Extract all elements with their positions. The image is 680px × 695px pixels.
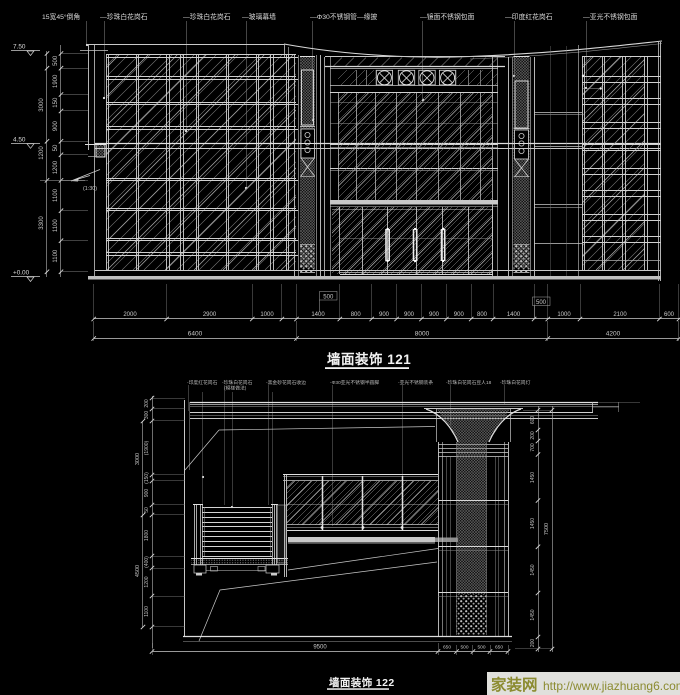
- svg-text:1450: 1450: [530, 518, 536, 529]
- svg-text:4200: 4200: [606, 331, 621, 338]
- svg-text:(1900): (1900): [144, 440, 150, 455]
- svg-text:1900: 1900: [53, 74, 59, 88]
- svg-text:1100: 1100: [53, 188, 59, 202]
- svg-text:900: 900: [429, 312, 440, 318]
- svg-text:6400: 6400: [188, 331, 203, 338]
- svg-text:3000: 3000: [39, 98, 45, 112]
- svg-text:8000: 8000: [415, 331, 430, 338]
- svg-text:9500: 9500: [313, 645, 327, 651]
- svg-text:15宽45°倒角: 15宽45°倒角: [42, 12, 80, 21]
- svg-text:2100: 2100: [613, 312, 627, 318]
- svg-text:500: 500: [323, 295, 334, 301]
- svg-text:1200: 1200: [39, 146, 45, 160]
- svg-text:150: 150: [53, 97, 59, 108]
- svg-text:1400: 1400: [311, 312, 325, 318]
- svg-text:1400: 1400: [507, 312, 521, 318]
- svg-text:200: 200: [144, 399, 150, 408]
- svg-text:1100: 1100: [53, 249, 59, 263]
- svg-text:(400): (400): [144, 556, 150, 568]
- svg-text:墙面装饰 121: 墙面装饰 121: [327, 351, 411, 367]
- svg-text:2000: 2000: [123, 312, 137, 318]
- svg-text:900: 900: [53, 120, 59, 131]
- svg-text:—玻璃幕墙: —玻璃幕墙: [242, 12, 276, 21]
- svg-text:1450: 1450: [530, 472, 536, 483]
- svg-text:200: 200: [530, 431, 536, 440]
- svg-text:500: 500: [53, 55, 59, 66]
- svg-text:—印度红花岗石: —印度红花岗石: [505, 12, 553, 21]
- svg-text:+0.00: +0.00: [13, 270, 30, 277]
- svg-text:650: 650: [443, 645, 451, 651]
- svg-text:800: 800: [477, 312, 488, 318]
- svg-text:1100: 1100: [53, 219, 59, 233]
- svg-text:-珍珠白花岗灯: -珍珠白花岗灯: [500, 379, 531, 386]
- svg-text:7500: 7500: [544, 523, 550, 535]
- svg-text:1200: 1200: [53, 160, 59, 174]
- svg-text:500: 500: [477, 645, 485, 651]
- svg-text:800: 800: [351, 312, 362, 318]
- svg-text:家装网: 家装网: [491, 675, 538, 694]
- svg-text:-黑金砂花岗石收边: -黑金砂花岗石收边: [266, 379, 306, 386]
- svg-text:-Φ30亚光不锈钢半圆脚: -Φ30亚光不锈钢半圆脚: [330, 379, 379, 386]
- svg-text:200: 200: [530, 639, 536, 648]
- svg-text:300: 300: [144, 411, 150, 420]
- svg-text:1000: 1000: [557, 312, 571, 318]
- svg-text:—Φ30不锈钢管—缘披: —Φ30不锈钢管—缘披: [310, 12, 378, 21]
- svg-text:900: 900: [404, 312, 415, 318]
- svg-text:7.50: 7.50: [13, 44, 26, 51]
- svg-text:—珍珠白花岗石: —珍珠白花岗石: [100, 12, 148, 21]
- svg-text:1450: 1450: [530, 564, 536, 575]
- svg-text:1450: 1450: [530, 609, 536, 620]
- svg-text:700: 700: [530, 443, 536, 452]
- svg-text:900: 900: [454, 312, 465, 318]
- svg-text:1100: 1100: [144, 606, 150, 617]
- svg-text:-珍珠白花岗石豆人18: -珍珠白花岗石豆人18: [446, 379, 492, 386]
- svg-text:2900: 2900: [203, 312, 217, 318]
- svg-text:4500: 4500: [135, 565, 141, 577]
- svg-text:-珍珠白花岗石: -珍珠白花岗石: [222, 379, 253, 386]
- svg-text:-亚光不锈钢装条: -亚光不锈钢装条: [398, 379, 433, 386]
- svg-text:900: 900: [144, 489, 150, 498]
- svg-text:—镜面不锈钢包面: —镜面不锈钢包面: [420, 12, 475, 21]
- svg-text:4.50: 4.50: [13, 136, 26, 143]
- svg-text:900: 900: [379, 312, 390, 318]
- svg-text:http://www.jiazhuang6.com: http://www.jiazhuang6.com: [543, 679, 680, 693]
- svg-text:-印度红花岗石: -印度红花岗石: [187, 379, 218, 386]
- svg-text:墙面装饰 122: 墙面装饰 122: [329, 676, 395, 689]
- svg-text:1800: 1800: [144, 530, 150, 541]
- svg-text:(150): (150): [144, 472, 150, 484]
- svg-text:1200: 1200: [144, 576, 150, 587]
- svg-text:50: 50: [144, 507, 150, 513]
- svg-text:600: 600: [530, 416, 536, 425]
- svg-text:3000: 3000: [135, 453, 141, 465]
- svg-text:500: 500: [536, 300, 547, 306]
- svg-text:(模樣做法): (模樣做法): [224, 385, 247, 392]
- svg-text:500: 500: [460, 645, 468, 651]
- svg-text:—珍珠白花岗石: —珍珠白花岗石: [183, 12, 231, 21]
- svg-text:50: 50: [53, 144, 59, 151]
- svg-text:650: 650: [495, 645, 503, 651]
- svg-text:3300: 3300: [39, 216, 45, 230]
- svg-text:—亚光不锈钢包面: —亚光不锈钢包面: [583, 12, 638, 21]
- svg-text:(1:30): (1:30): [83, 186, 97, 192]
- svg-text:1000: 1000: [260, 312, 274, 318]
- svg-text:600: 600: [664, 312, 675, 318]
